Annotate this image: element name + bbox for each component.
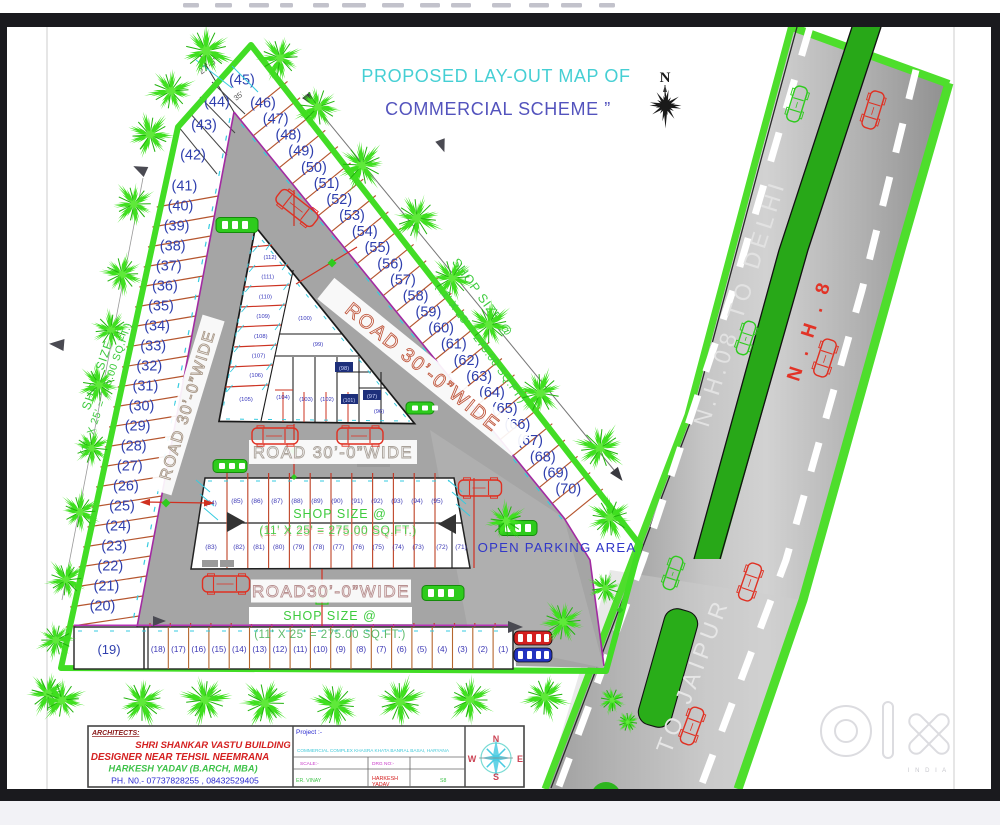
svg-text:S8: S8 [440,778,446,784]
svg-text:(75): (75) [373,544,385,551]
svg-text:(33): (33) [140,339,166,355]
svg-text:(92): (92) [371,498,383,505]
svg-text:(87): (87) [271,498,283,505]
svg-text:(71): (71) [455,544,467,551]
svg-text:(53): (53) [339,208,365,224]
svg-text:(94): (94) [411,498,423,505]
svg-text:(9): (9) [336,645,346,654]
svg-text:(74): (74) [392,544,404,551]
svg-text:(79): (79) [293,544,305,551]
svg-text:(104): (104) [276,395,290,401]
svg-text:(69): (69) [543,465,569,481]
svg-text:(90): (90) [331,498,343,505]
svg-text:(58): (58) [403,289,429,305]
svg-text:(110): (110) [259,294,272,300]
svg-text:(5): (5) [417,645,427,654]
svg-text:(3): (3) [458,645,468,654]
svg-text:(7): (7) [376,645,386,654]
svg-text:(29): (29) [125,419,151,435]
svg-text:(2): (2) [478,645,488,654]
svg-text:(97): (97) [367,394,377,400]
svg-text:(32): (32) [136,359,162,375]
svg-text:(52): (52) [326,192,352,208]
svg-text:(47): (47) [263,112,289,128]
svg-text:(109): (109) [256,314,270,320]
svg-text:HARKESH YADAV (B.ARCH, MBA): HARKESH YADAV (B.ARCH, MBA) [108,764,257,774]
svg-text:(4): (4) [437,645,447,654]
svg-text:COMMERCIAL SCHEME ”: COMMERCIAL SCHEME ” [385,99,611,119]
svg-text:(46): (46) [250,96,276,112]
svg-text:(48): (48) [276,128,302,144]
svg-text:PROPOSED LAY-OUT MAP OF: PROPOSED LAY-OUT MAP OF [361,66,630,86]
svg-text:(14): (14) [232,645,247,654]
svg-text:(81): (81) [253,544,265,551]
svg-text:OPEN PARKING AREA: OPEN PARKING AREA [478,540,637,555]
svg-text:(8): (8) [356,645,366,654]
svg-text:SCALE:-: SCALE:- [300,761,319,767]
svg-text:(41): (41) [172,179,198,195]
svg-text:(111): (111) [261,275,274,281]
svg-text:(56): (56) [377,256,403,272]
svg-text:I N D I A: I N D I A [908,768,948,774]
svg-text:ROAD30’-0”WIDE: ROAD30’-0”WIDE [252,582,410,601]
svg-text:(21): (21) [94,579,120,595]
svg-text:W: W [468,754,477,764]
svg-text:(42): (42) [180,148,206,164]
svg-text:(51): (51) [314,176,340,192]
svg-text:(100): (100) [298,316,312,322]
svg-text:(11): (11) [293,645,307,654]
svg-text:(20): (20) [90,599,116,615]
svg-text:(25): (25) [109,499,135,515]
svg-text:(88): (88) [291,498,303,505]
svg-text:(72): (72) [436,544,448,551]
svg-text:(17): (17) [171,645,186,654]
svg-text:(82): (82) [233,544,245,551]
svg-text:(99): (99) [313,342,323,348]
svg-text:(106): (106) [249,373,263,379]
svg-text:(28): (28) [121,439,147,455]
svg-text:(36): (36) [152,279,178,295]
svg-text:(55): (55) [365,240,391,256]
svg-text:(11' X 25' = 275.00 SQ.FT.): (11' X 25' = 275.00 SQ.FT.) [254,629,406,641]
svg-text:(35): (35) [148,299,174,315]
svg-text:(39): (39) [164,219,190,235]
svg-text:DRG NO:-: DRG NO:- [372,761,395,767]
svg-text:(101): (101) [343,398,355,404]
svg-text:(38): (38) [160,239,186,255]
svg-text:(73): (73) [412,544,424,551]
svg-text:(10): (10) [313,645,328,654]
svg-text:(18): (18) [151,645,166,654]
svg-text:(85): (85) [231,498,243,505]
svg-text:SHOP SIZE @: SHOP SIZE @ [293,507,387,521]
svg-text:(23): (23) [101,539,127,555]
svg-text:COMMERCIAL COMPLEX KHASRA KHAT: COMMERCIAL COMPLEX KHASRA KHATA BANRAL B… [297,748,450,753]
svg-text:(49): (49) [288,144,314,160]
svg-text:(107): (107) [252,354,266,360]
svg-text:(24): (24) [105,519,131,535]
svg-text:S: S [493,772,499,782]
svg-text:(1): (1) [498,645,508,654]
svg-text:(89): (89) [311,498,323,505]
svg-text:ARCHITECTS:: ARCHITECTS: [91,730,139,737]
svg-text:(43): (43) [191,118,217,134]
svg-text:(19): (19) [97,642,120,657]
svg-text:(78): (78) [313,544,325,551]
svg-text:DESIGNER NEAR TEHSIL NEEMRANA: DESIGNER NEAR TEHSIL NEEMRANA [91,752,269,763]
svg-text:(61): (61) [441,337,467,353]
svg-text:(86): (86) [251,498,263,505]
svg-text:(103): (103) [299,397,313,403]
svg-text:(27): (27) [117,459,143,475]
svg-text:(57): (57) [390,272,416,288]
svg-text:(112): (112) [263,255,276,261]
svg-text:(105): (105) [239,397,253,403]
svg-text:(22): (22) [97,559,123,575]
svg-text:ROAD 30’-0”WIDE: ROAD 30’-0”WIDE [253,444,413,462]
svg-text:(40): (40) [168,199,194,215]
svg-text:E: E [517,754,523,764]
svg-text:ER. VINAY: ER. VINAY [296,778,322,784]
svg-text:(91): (91) [351,498,363,505]
svg-text:(93): (93) [391,498,403,505]
svg-text:(37): (37) [156,259,182,275]
svg-text:YADAV: YADAV [372,782,390,788]
svg-text:(59): (59) [416,305,442,321]
svg-text:(63): (63) [466,369,492,385]
svg-text:(30): (30) [129,399,155,415]
svg-text:(95): (95) [431,498,443,505]
svg-text:(12): (12) [273,645,288,654]
svg-text:(68): (68) [530,449,556,465]
svg-text:PH. N0.- 07737828255 , 0843252: PH. N0.- 07737828255 , 08432529405 [111,776,259,786]
svg-text:(83): (83) [205,544,217,551]
svg-text:(70): (70) [555,481,581,497]
svg-text:(11' X 25' = 275.00 SQ.FT.): (11' X 25' = 275.00 SQ.FT.) [259,523,417,537]
svg-text:(15): (15) [212,645,227,654]
svg-text:(45): (45) [229,73,255,89]
svg-text:(6): (6) [397,645,407,654]
svg-text:N: N [660,70,671,86]
svg-text:(34): (34) [144,319,170,335]
svg-text:(98): (98) [339,366,349,372]
svg-text:Project :-: Project :- [296,729,322,736]
svg-text:(13): (13) [252,645,267,654]
svg-text:(76): (76) [353,544,365,551]
svg-text:N: N [493,734,500,744]
svg-text:(80): (80) [273,544,285,551]
svg-text:(54): (54) [352,224,378,240]
svg-text:(16): (16) [191,645,206,654]
svg-text:(102): (102) [320,397,334,403]
svg-text:(108): (108) [254,334,268,340]
svg-text:(26): (26) [113,479,139,495]
svg-text:(62): (62) [454,353,480,369]
svg-text:SHRI SHANKAR VASTU BUILDING: SHRI SHANKAR VASTU BUILDING [135,740,291,751]
svg-text:(31): (31) [133,379,159,395]
svg-text:(60): (60) [428,321,454,337]
svg-text:(50): (50) [301,160,327,176]
svg-text:(77): (77) [333,544,345,551]
svg-text:SHOP SIZE @: SHOP SIZE @ [283,609,377,623]
svg-text:(96): (96) [374,409,384,415]
